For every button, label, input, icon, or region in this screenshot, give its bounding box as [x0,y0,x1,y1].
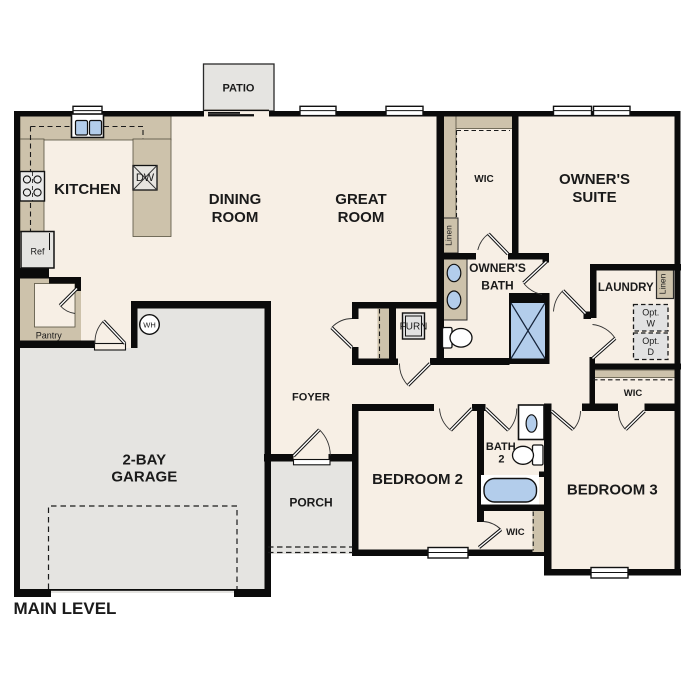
svg-text:WIC: WIC [624,388,643,399]
svg-text:ROOM: ROOM [338,209,385,226]
svg-text:OWNER'S: OWNER'S [469,261,526,275]
svg-text:ROOM: ROOM [212,209,259,226]
svg-text:BATH: BATH [481,279,513,293]
svg-text:PATIO: PATIO [223,83,255,95]
svg-text:OWNER'S: OWNER'S [559,171,630,188]
svg-text:WIC: WIC [474,174,493,185]
svg-text:Linen: Linen [658,273,668,294]
svg-text:Opt.: Opt. [642,308,659,318]
svg-text:WH: WH [143,321,156,330]
svg-text:GARAGE: GARAGE [111,469,177,486]
svg-text:PORCH: PORCH [289,496,332,510]
svg-text:KITCHEN: KITCHEN [54,181,121,198]
svg-text:MAIN LEVEL: MAIN LEVEL [14,599,117,618]
svg-text:WIC: WIC [506,527,525,538]
svg-text:Ref: Ref [30,247,45,257]
svg-text:2-BAY: 2-BAY [122,452,166,469]
svg-text:DW: DW [136,172,155,184]
svg-text:DINING: DINING [209,191,262,208]
svg-text:GREAT: GREAT [335,191,386,208]
svg-text:Linen: Linen [444,225,454,246]
svg-text:LAUNDRY: LAUNDRY [598,282,654,294]
svg-text:Pantry: Pantry [36,331,63,341]
svg-text:D: D [648,347,655,357]
svg-text:FOYER: FOYER [292,392,330,404]
svg-text:2: 2 [498,454,504,466]
svg-text:Opt.: Opt. [642,336,659,346]
svg-text:BATH: BATH [486,441,516,453]
svg-text:BEDROOM 3: BEDROOM 3 [567,482,658,499]
svg-text:FURN: FURN [400,322,428,333]
svg-text:W: W [647,319,656,329]
svg-text:SUITE: SUITE [572,189,616,206]
svg-text:BEDROOM 2: BEDROOM 2 [372,471,463,488]
